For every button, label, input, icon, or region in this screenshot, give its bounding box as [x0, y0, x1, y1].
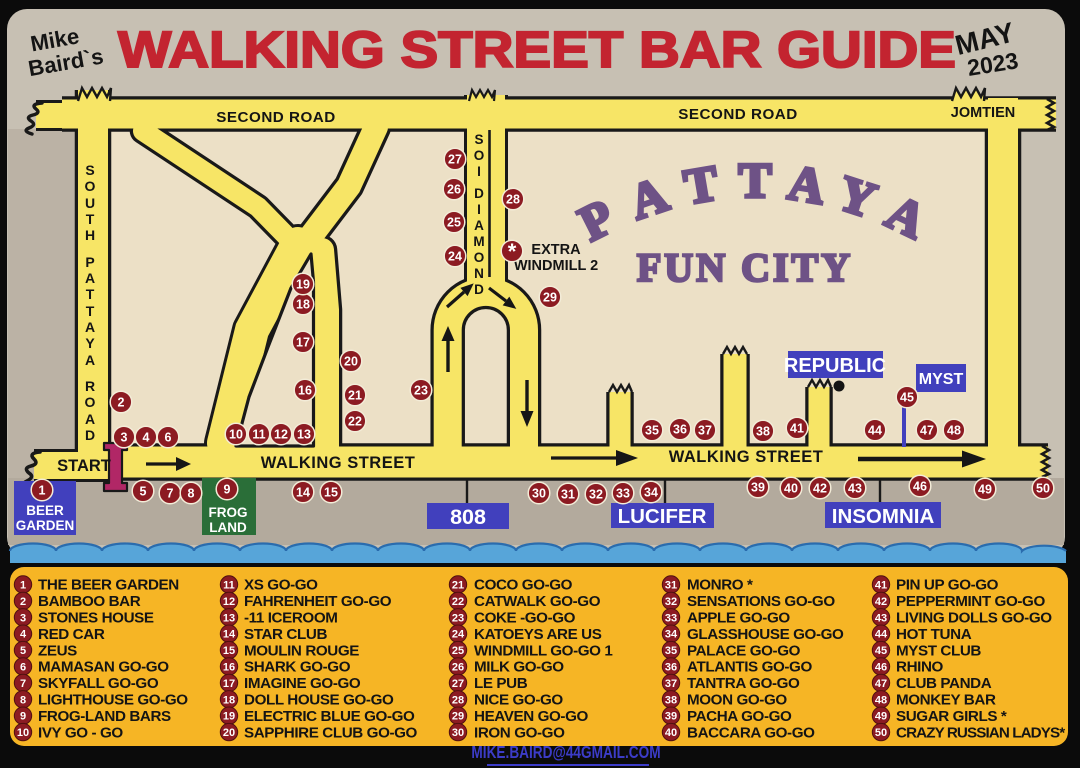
svg-text:T: T: [86, 303, 95, 319]
svg-text:O: O: [474, 250, 485, 265]
svg-text:27: 27: [448, 153, 462, 167]
svg-text:HEAVEN GO-GO: HEAVEN GO-GO: [474, 708, 588, 725]
svg-text:IRON GO-GO: IRON GO-GO: [474, 724, 565, 741]
svg-text:D: D: [474, 186, 484, 201]
svg-text:CRAZY RUSSIAN LADYS*: CRAZY RUSSIAN LADYS*: [896, 724, 1065, 741]
svg-text:6: 6: [20, 662, 26, 674]
svg-text:PIN UP GO-GO: PIN UP GO-GO: [896, 577, 999, 594]
svg-text:22: 22: [452, 596, 464, 608]
svg-text:48: 48: [875, 694, 887, 706]
svg-text:20: 20: [344, 355, 358, 369]
svg-text:COCO GO-GO: COCO GO-GO: [474, 577, 573, 594]
svg-text:ELECTRIC BLUE GO-GO: ELECTRIC BLUE GO-GO: [244, 708, 415, 725]
svg-text:6: 6: [165, 431, 172, 445]
svg-text:35: 35: [665, 645, 677, 657]
svg-text:8: 8: [20, 694, 26, 706]
svg-text:LAND: LAND: [209, 520, 247, 535]
svg-text:39: 39: [665, 711, 677, 723]
svg-text:COKE -GO-GO: COKE -GO-GO: [474, 610, 576, 627]
svg-text:1: 1: [20, 580, 26, 592]
svg-text:23: 23: [452, 612, 464, 624]
svg-text:44: 44: [868, 424, 882, 438]
svg-text:PEPPERMINT GO-GO: PEPPERMINT GO-GO: [896, 593, 1045, 610]
svg-text:10: 10: [229, 428, 243, 442]
svg-text:37: 37: [698, 424, 712, 438]
svg-text:XS GO-GO: XS GO-GO: [244, 577, 318, 594]
svg-text:A: A: [85, 319, 95, 335]
svg-text:21: 21: [452, 580, 464, 592]
svg-text:9: 9: [20, 711, 26, 723]
svg-text:36: 36: [673, 423, 687, 437]
svg-text:10: 10: [17, 727, 29, 739]
svg-text:MONRO *: MONRO *: [687, 577, 753, 594]
svg-text:GLASSHOUSE GO-GO: GLASSHOUSE GO-GO: [687, 626, 844, 643]
svg-text:32: 32: [665, 596, 677, 608]
svg-text:O: O: [474, 148, 485, 163]
svg-text:MOULIN ROUGE: MOULIN ROUGE: [244, 642, 359, 659]
svg-text:20: 20: [223, 727, 235, 739]
svg-text:1: 1: [39, 484, 46, 498]
svg-text:50: 50: [1036, 482, 1050, 496]
svg-text:7: 7: [167, 487, 174, 501]
svg-text:RHINO: RHINO: [896, 659, 944, 676]
svg-text:GARDEN: GARDEN: [16, 518, 75, 533]
svg-text:29: 29: [452, 711, 464, 723]
svg-text:13: 13: [223, 612, 235, 624]
svg-text:47: 47: [875, 678, 887, 690]
svg-text:D: D: [474, 282, 484, 297]
svg-text:14: 14: [223, 629, 236, 641]
svg-text:46: 46: [913, 480, 927, 494]
svg-text:34: 34: [665, 629, 678, 641]
svg-text:I: I: [477, 164, 481, 179]
svg-text:STAR CLUB: STAR CLUB: [244, 626, 327, 643]
svg-text:31: 31: [665, 580, 677, 592]
svg-text:BAMBOO BAR: BAMBOO BAR: [38, 593, 141, 610]
svg-text:STONES HOUSE: STONES HOUSE: [38, 610, 154, 627]
svg-text:4: 4: [20, 629, 27, 641]
svg-text:S: S: [85, 162, 94, 178]
svg-text:I: I: [477, 202, 481, 217]
svg-text:RED CAR: RED CAR: [38, 626, 105, 643]
svg-text:12: 12: [223, 596, 235, 608]
svg-text:-11 ICEROOM: -11 ICEROOM: [244, 610, 338, 627]
svg-text:ZEUS: ZEUS: [38, 642, 77, 659]
svg-text:44: 44: [875, 629, 888, 641]
svg-text:2: 2: [20, 596, 26, 608]
svg-text:47: 47: [920, 424, 934, 438]
svg-text:KATOEYS ARE US: KATOEYS ARE US: [474, 626, 602, 643]
svg-text:50: 50: [875, 727, 887, 739]
svg-text:17: 17: [223, 678, 235, 690]
svg-text:3: 3: [121, 431, 128, 445]
svg-text:MYST CLUB: MYST CLUB: [896, 642, 981, 659]
svg-text:M: M: [473, 234, 484, 249]
svg-text:26: 26: [447, 183, 461, 197]
svg-text:33: 33: [616, 487, 630, 501]
svg-text:MILK GO-GO: MILK GO-GO: [474, 659, 564, 676]
svg-text:39: 39: [751, 481, 765, 495]
svg-text:EXTRA: EXTRA: [531, 242, 581, 258]
svg-text:18: 18: [223, 694, 235, 706]
svg-text:MOON GO-GO: MOON GO-GO: [687, 692, 787, 709]
svg-text:40: 40: [784, 482, 798, 496]
svg-text:Y: Y: [85, 335, 95, 351]
svg-text:38: 38: [756, 425, 770, 439]
svg-text:15: 15: [223, 645, 235, 657]
svg-text:33: 33: [665, 612, 677, 624]
svg-text:5: 5: [20, 645, 26, 657]
svg-text:MONKEY BAR: MONKEY BAR: [896, 692, 996, 709]
svg-text:19: 19: [296, 278, 310, 292]
svg-text:37: 37: [665, 678, 677, 690]
svg-text:11: 11: [223, 580, 235, 592]
svg-text:SAPPHIRE CLUB GO-GO: SAPPHIRE CLUB GO-GO: [244, 724, 418, 741]
svg-text:9: 9: [224, 483, 231, 497]
svg-text:JOMTIEN: JOMTIEN: [951, 105, 1015, 121]
svg-text:A: A: [85, 352, 95, 368]
svg-text:13: 13: [297, 428, 311, 442]
svg-text:R: R: [85, 378, 95, 394]
svg-text:THE BEER GARDEN: THE BEER GARDEN: [38, 577, 179, 594]
svg-text:24: 24: [448, 250, 462, 264]
svg-text:*: *: [508, 239, 517, 264]
svg-text:23: 23: [414, 384, 428, 398]
svg-text:SKYFALL GO-GO: SKYFALL GO-GO: [38, 675, 159, 692]
svg-text:U: U: [85, 195, 95, 211]
svg-text:5: 5: [140, 485, 147, 499]
svg-text:25: 25: [452, 645, 464, 657]
svg-text:24: 24: [452, 629, 465, 641]
svg-text:NICE GO-GO: NICE GO-GO: [474, 692, 563, 709]
svg-text:INSOMNIA: INSOMNIA: [832, 505, 935, 528]
svg-text:2: 2: [118, 396, 125, 410]
svg-text:SHARK GO-GO: SHARK GO-GO: [244, 659, 351, 676]
svg-text:SUGAR GIRLS *: SUGAR GIRLS *: [896, 708, 1007, 725]
svg-text:REPUBLIC: REPUBLIC: [784, 355, 886, 377]
svg-text:IVY GO - GO: IVY GO - GO: [38, 724, 123, 741]
svg-text:11: 11: [252, 428, 265, 442]
svg-text:35: 35: [645, 424, 659, 438]
svg-text:36: 36: [665, 662, 677, 674]
svg-text:O: O: [85, 178, 96, 194]
svg-text:38: 38: [665, 694, 677, 706]
svg-text:12: 12: [274, 428, 288, 442]
svg-text:49: 49: [978, 483, 992, 497]
svg-text:25: 25: [447, 216, 461, 230]
svg-text:4: 4: [143, 431, 150, 445]
svg-text:CLUB PANDA: CLUB PANDA: [896, 675, 992, 692]
svg-text:LE PUB: LE PUB: [474, 675, 528, 692]
svg-text:WINDMILL GO-GO 1: WINDMILL GO-GO 1: [474, 642, 613, 659]
svg-text:A: A: [85, 411, 95, 427]
svg-text:27: 27: [452, 678, 464, 690]
svg-text:28: 28: [452, 694, 464, 706]
svg-text:7: 7: [20, 678, 26, 690]
svg-text:SENSATIONS GO-GO: SENSATIONS GO-GO: [687, 593, 835, 610]
svg-text:T: T: [738, 152, 771, 208]
svg-text:FROG: FROG: [209, 505, 248, 520]
svg-text:29: 29: [543, 291, 557, 305]
svg-text:START: START: [57, 457, 111, 475]
svg-text:41: 41: [790, 422, 804, 436]
svg-text:TANTRA GO-GO: TANTRA GO-GO: [687, 675, 800, 692]
svg-text:808: 808: [450, 505, 486, 529]
svg-text:26: 26: [452, 662, 464, 674]
svg-text:19: 19: [223, 711, 235, 723]
svg-text:IMAGINE GO-GO: IMAGINE GO-GO: [244, 675, 361, 692]
svg-text:45: 45: [875, 645, 887, 657]
svg-text:WALKING STREET: WALKING STREET: [669, 448, 824, 466]
svg-text:T: T: [86, 286, 95, 302]
svg-text:ATLANTIS GO-GO: ATLANTIS GO-GO: [687, 659, 812, 676]
svg-text:15: 15: [324, 486, 338, 500]
svg-text:PACHA GO-GO: PACHA GO-GO: [687, 708, 792, 725]
svg-text:45: 45: [900, 391, 914, 405]
svg-text:P: P: [85, 254, 94, 270]
svg-text:22: 22: [348, 415, 362, 429]
svg-text:FUN CITY: FUN CITY: [637, 245, 853, 290]
svg-text:FAHRENHEIT GO-GO: FAHRENHEIT GO-GO: [244, 593, 392, 610]
svg-text:BEER: BEER: [26, 503, 64, 518]
svg-text:46: 46: [875, 662, 887, 674]
svg-text:MAMASAN GO-GO: MAMASAN GO-GO: [38, 659, 169, 676]
svg-text:N: N: [474, 266, 484, 281]
svg-text:41: 41: [875, 580, 887, 592]
svg-text:30: 30: [452, 727, 464, 739]
svg-text:LUCIFER: LUCIFER: [618, 505, 707, 528]
svg-text:BACCARA GO-GO: BACCARA GO-GO: [687, 724, 815, 741]
svg-text:31: 31: [561, 488, 575, 502]
svg-text:42: 42: [875, 596, 887, 608]
svg-text:42: 42: [813, 482, 827, 496]
svg-text:16: 16: [223, 662, 235, 674]
svg-text:48: 48: [947, 424, 961, 438]
svg-text:O: O: [85, 394, 96, 410]
svg-text:8: 8: [188, 487, 195, 501]
svg-text:SECOND ROAD: SECOND ROAD: [678, 106, 797, 123]
svg-text:34: 34: [644, 486, 658, 500]
svg-text:43: 43: [875, 612, 887, 624]
svg-text:PALACE GO-GO: PALACE GO-GO: [687, 642, 801, 659]
svg-text:40: 40: [665, 727, 677, 739]
svg-text:FROG-LAND BARS: FROG-LAND BARS: [38, 708, 171, 725]
svg-text:D: D: [85, 427, 95, 443]
svg-text:CATWALK GO-GO: CATWALK GO-GO: [474, 593, 601, 610]
svg-text:14: 14: [296, 486, 310, 500]
svg-text:16: 16: [298, 384, 312, 398]
svg-text:32: 32: [589, 488, 603, 502]
svg-text:MYST: MYST: [919, 371, 964, 388]
svg-text:A: A: [85, 270, 95, 286]
svg-text:21: 21: [348, 389, 362, 403]
svg-text:30: 30: [532, 487, 546, 501]
svg-text:HOT TUNA: HOT TUNA: [896, 626, 972, 643]
svg-text:LIGHTHOUSE GO-GO: LIGHTHOUSE GO-GO: [38, 692, 188, 709]
svg-text:A: A: [474, 218, 484, 233]
svg-text:28: 28: [506, 193, 520, 207]
svg-text:17: 17: [296, 336, 310, 350]
svg-text:APPLE GO-GO: APPLE GO-GO: [687, 610, 790, 627]
svg-text:S: S: [474, 132, 483, 147]
svg-text:LIVING DOLLS GO-GO: LIVING DOLLS GO-GO: [896, 610, 1052, 627]
svg-text:H: H: [85, 227, 95, 243]
svg-text:43: 43: [848, 482, 862, 496]
svg-text:MIKE.BAIRD@44GMAIL.COM: MIKE.BAIRD@44GMAIL.COM: [471, 744, 660, 763]
svg-text:WALKING STREET: WALKING STREET: [261, 454, 416, 472]
svg-text:SECOND ROAD: SECOND ROAD: [216, 109, 335, 126]
svg-text:DOLL HOUSE GO-GO: DOLL HOUSE GO-GO: [244, 692, 394, 709]
svg-text:WALKING STREET BAR GUIDE: WALKING STREET BAR GUIDE: [118, 21, 956, 78]
svg-text:3: 3: [20, 612, 26, 624]
svg-text:WINDMILL 2: WINDMILL 2: [514, 258, 598, 274]
svg-text:T: T: [86, 211, 95, 227]
svg-text:49: 49: [875, 711, 887, 723]
svg-text:18: 18: [296, 298, 310, 312]
